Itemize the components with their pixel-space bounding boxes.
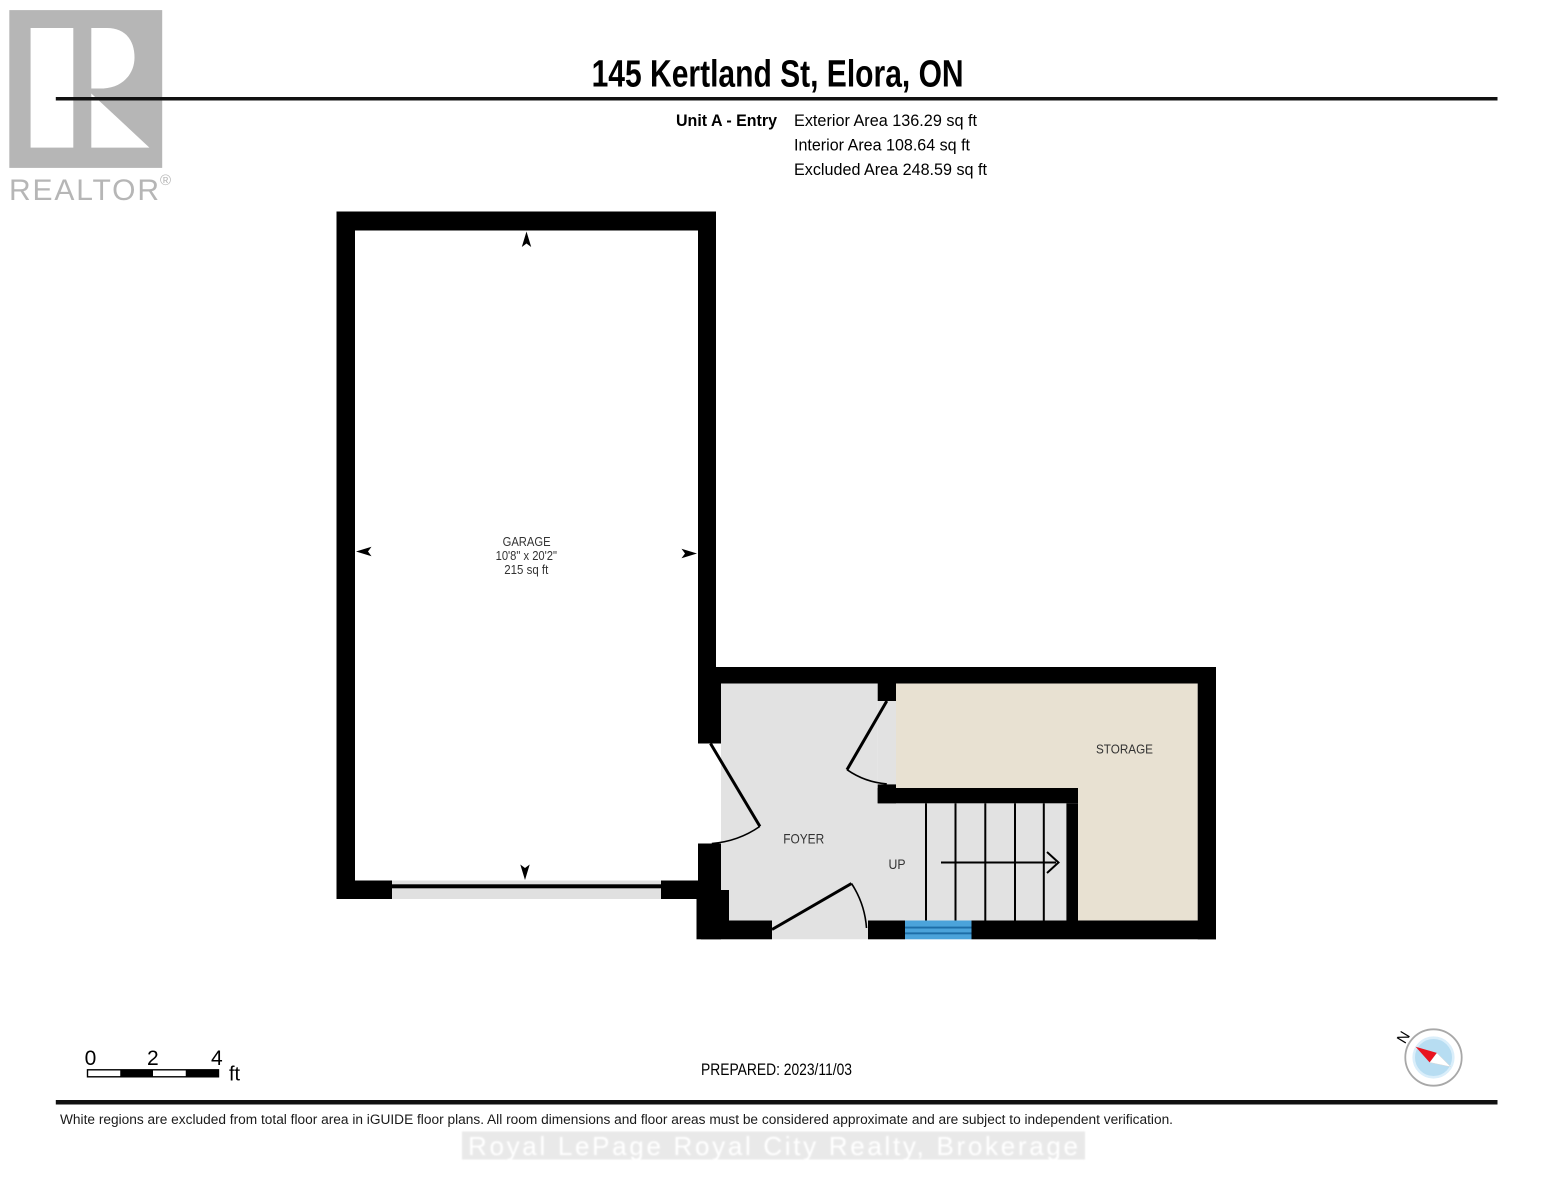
svg-text:White regions are excluded fro: White regions are excluded from total fl… <box>60 1112 1173 1127</box>
svg-text:Royal LePage Royal City Realty: Royal LePage Royal City Realty, Brokerag… <box>468 1131 1078 1161</box>
svg-text:0: 0 <box>85 1047 97 1070</box>
svg-text:Interior Area 108.64 sq ft: Interior Area 108.64 sq ft <box>794 136 970 155</box>
svg-text:PREPARED: 2023/11/03: PREPARED: 2023/11/03 <box>701 1060 852 1079</box>
svg-text:10'8" x 20'2": 10'8" x 20'2" <box>496 548 558 563</box>
svg-text:STORAGE: STORAGE <box>1096 742 1153 757</box>
svg-text:Unit A - Entry: Unit A - Entry <box>676 111 778 130</box>
svg-text:®: ® <box>160 172 171 189</box>
svg-text:ft: ft <box>229 1064 241 1086</box>
svg-text:145 Kertland St, Elora, ON: 145 Kertland St, Elora, ON <box>592 54 964 96</box>
svg-text:2: 2 <box>147 1047 159 1070</box>
svg-text:GARAGE: GARAGE <box>503 534 551 549</box>
svg-text:Exterior Area 136.29 sq ft: Exterior Area 136.29 sq ft <box>794 111 977 130</box>
svg-text:Excluded Area 248.59 sq ft: Excluded Area 248.59 sq ft <box>794 160 987 179</box>
svg-text:4: 4 <box>211 1047 223 1070</box>
svg-text:UP: UP <box>889 856 906 872</box>
svg-text:215 sq ft: 215 sq ft <box>504 562 548 577</box>
svg-text:FOYER: FOYER <box>783 831 824 847</box>
